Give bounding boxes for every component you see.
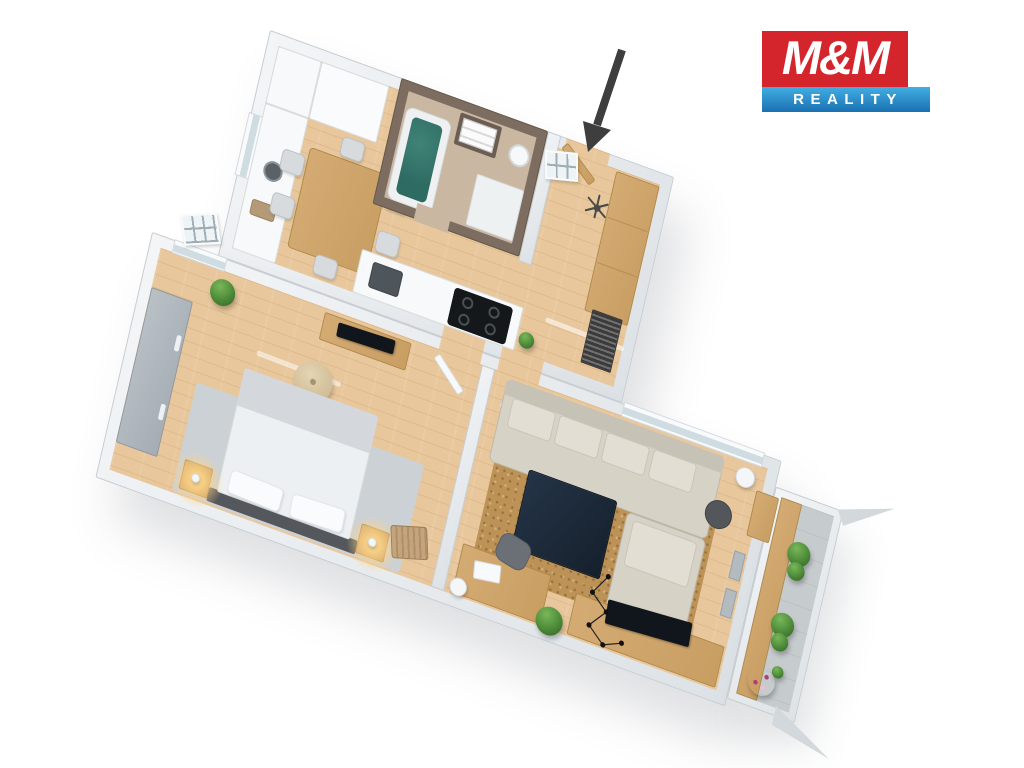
balcony-railing-flap [835, 489, 895, 542]
bedroom-window-open-casement [180, 213, 221, 246]
entrance-arrow-icon [558, 46, 648, 161]
mm-reality-logo: M&M REALITY [762, 31, 930, 112]
logo-reality-text: REALITY [762, 87, 930, 112]
bedroom-chair [390, 525, 428, 560]
floor-plan-render: M&M REALITY [0, 0, 1024, 768]
logo-mm-text: M&M [762, 31, 908, 87]
